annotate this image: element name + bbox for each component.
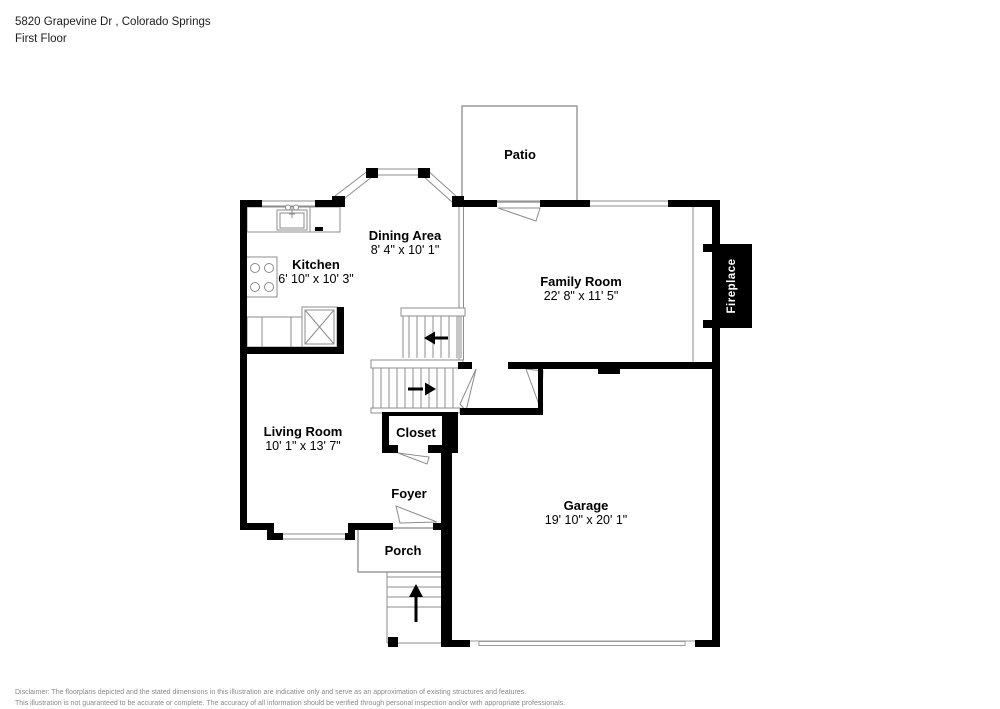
kitchen-island-icon <box>302 307 337 347</box>
floorplan-drawing <box>0 0 1000 707</box>
fireplace-label: Fireplace <box>726 259 738 314</box>
room-label-dining: Dining Area 8' 4" x 10' 1" <box>369 229 441 257</box>
front-steps <box>387 572 441 643</box>
stairs-lower <box>371 360 463 413</box>
interior-walls <box>240 307 717 647</box>
living-name: Living Room <box>264 425 343 439</box>
bay-window-dining <box>335 169 456 202</box>
exterior-walls <box>240 168 720 647</box>
floor-title: First Floor <box>15 33 67 45</box>
front-steps-up-arrow-icon <box>409 584 423 622</box>
garage-name: Garage <box>545 499 627 513</box>
stairs-lower-right-arrow-icon <box>408 383 436 396</box>
room-label-porch: Porch <box>385 544 422 558</box>
dining-name: Dining Area <box>369 229 441 243</box>
hall-door-left <box>460 369 476 411</box>
kitchen-sink-icon <box>277 205 307 230</box>
closet-door <box>398 453 429 464</box>
kitchen-name: Kitchen <box>278 258 354 272</box>
dishwasher-mark <box>315 227 323 231</box>
room-label-patio: Patio <box>504 148 536 162</box>
disclaimer-line1: Disclaimer: The floorplans depicted and … <box>15 687 526 698</box>
room-label-garage: Garage 19' 10" x 20' 1" <box>545 499 627 527</box>
porch-name: Porch <box>385 544 422 558</box>
dining-dims: 8' 4" x 10' 1" <box>369 243 441 257</box>
living-dims: 10' 1" x 13' 7" <box>264 439 343 453</box>
disclaimer-line2: This illustration is not guaranteed to b… <box>15 698 565 709</box>
room-label-foyer: Foyer <box>391 487 426 501</box>
floorplan-page: 5820 Grapevine Dr , Colorado Springs Fir… <box>0 0 1000 707</box>
stairs-upper-left-arrow-icon <box>424 332 448 345</box>
closet-name: Closet <box>396 426 436 440</box>
garage-dims: 19' 10" x 20' 1" <box>545 513 627 527</box>
garage-door <box>470 641 695 646</box>
stove-icon <box>246 257 277 297</box>
steps-corner-post <box>388 637 398 647</box>
patio-slider-door <box>498 208 540 221</box>
front-door <box>396 506 437 523</box>
room-label-living: Living Room 10' 1" x 13' 7" <box>264 425 343 453</box>
foyer-name: Foyer <box>391 487 426 501</box>
family-name: Family Room <box>540 275 622 289</box>
family-dims: 22' 8" x 11' 5" <box>540 289 622 303</box>
patio-name: Patio <box>504 148 536 162</box>
room-label-closet: Closet <box>396 426 436 440</box>
kitchen-dims: 6' 10" x 10' 3" <box>278 272 354 286</box>
room-label-family: Family Room 22' 8" x 11' 5" <box>540 275 622 303</box>
room-label-kitchen: Kitchen 6' 10" x 10' 3" <box>278 258 354 286</box>
address-title: 5820 Grapevine Dr , Colorado Springs <box>15 16 211 28</box>
